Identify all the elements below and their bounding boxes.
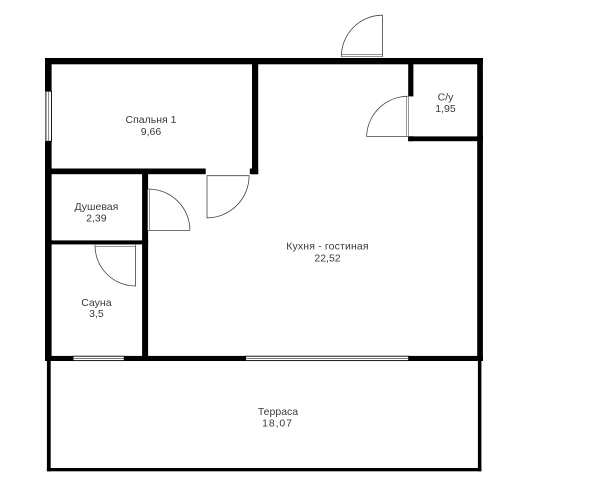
svg-text:1,95: 1,95 [435,103,456,115]
svg-text:Спальня 1: Спальня 1 [126,114,177,126]
svg-text:Терраса: Терраса [258,406,298,418]
svg-text:2,39: 2,39 [86,212,107,224]
svg-text:3,5: 3,5 [89,308,104,320]
svg-text:22,52: 22,52 [314,252,340,264]
svg-text:Душевая: Душевая [74,201,118,213]
svg-text:С/у: С/у [438,91,455,103]
svg-text:Кухня - гостиная: Кухня - гостиная [286,240,369,252]
svg-text:18,07: 18,07 [262,417,293,429]
svg-text:9,66: 9,66 [141,126,162,138]
